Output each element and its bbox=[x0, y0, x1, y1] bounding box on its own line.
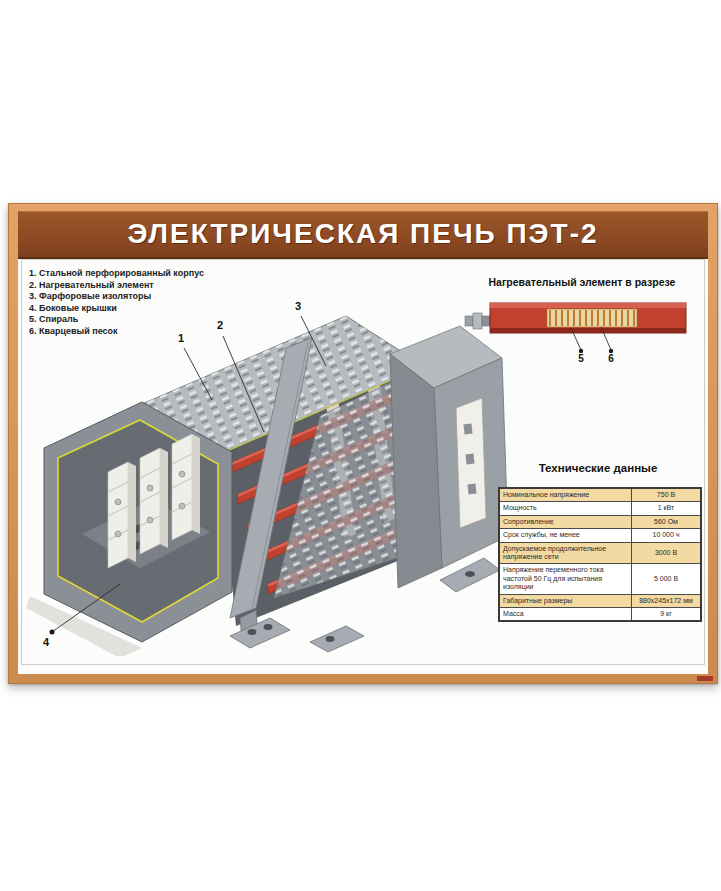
spiral-cutaway-window bbox=[547, 309, 637, 327]
table-row: Срок службы, не менее 10 000 ч bbox=[499, 529, 701, 542]
end-housing bbox=[390, 326, 508, 592]
publisher-mark bbox=[697, 676, 713, 681]
spec-label-cell: Габаритные размеры bbox=[499, 594, 632, 607]
table-row: Сопротивление 560 Ом bbox=[499, 515, 701, 528]
callout-dot bbox=[50, 630, 55, 635]
table-row: Напряжение переменного тока частотой 50 … bbox=[499, 564, 701, 594]
spec-label-cell: Напряжение переменного тока частотой 50 … bbox=[499, 564, 632, 594]
spec-table: Номинальное напряжение 750 В Мощность 1 … bbox=[498, 487, 702, 622]
spec-label-cell: Срок службы, не менее bbox=[499, 529, 632, 542]
spec-label-cell: Сопротивление bbox=[499, 515, 632, 528]
callout-5-spiral: 5 bbox=[578, 353, 584, 364]
callout-4-side-covers: 4 bbox=[43, 636, 50, 648]
side-cover-opening bbox=[44, 402, 232, 642]
page-title: ЭЛЕКТРИЧЕСКАЯ ПЕЧЬ ПЭТ-2 bbox=[18, 212, 708, 256]
spec-value-cell: 560 Ом bbox=[632, 515, 702, 528]
poster-photo-page: ЭЛЕКТРИЧЕСКАЯ ПЕЧЬ ПЭТ-2 1. Стальной пер… bbox=[0, 0, 721, 891]
poster-inner-sheet: ЭЛЕКТРИЧЕСКАЯ ПЕЧЬ ПЭТ-2 1. Стальной пер… bbox=[18, 211, 708, 674]
spec-table-title: Технические данные bbox=[478, 462, 718, 474]
callout-6-quartz-sand: 6 bbox=[608, 353, 614, 364]
callout-3-porcelain-insulators: 3 bbox=[295, 300, 301, 312]
table-row: Габаритные размеры 880х245х172 мм bbox=[499, 594, 701, 607]
spec-value-cell: 1 кВт bbox=[632, 502, 702, 515]
spec-value-cell: 9 кг bbox=[632, 607, 702, 621]
spec-label-cell: Масса bbox=[499, 607, 632, 621]
spec-label-cell: Допускаемое продолжительное напряжение с… bbox=[499, 542, 632, 564]
legend-item: 2. Нагревательный элемент bbox=[29, 280, 204, 292]
legend-item: 1. Стальной перфорированный корпус bbox=[29, 268, 204, 280]
spec-value-cell: 3000 В bbox=[632, 542, 702, 564]
table-row: Мощность 1 кВт bbox=[499, 502, 701, 515]
spec-value-cell: 5 000 В bbox=[632, 564, 702, 594]
callout-1-perforated-body: 1 bbox=[178, 332, 184, 344]
spec-value-cell: 750 В bbox=[632, 488, 702, 502]
spec-value-cell: 880х245х172 мм bbox=[632, 594, 702, 607]
mounting-feet bbox=[230, 610, 364, 652]
callout-2-heating-element: 2 bbox=[217, 319, 223, 331]
spec-label-cell: Номинальное напряжение bbox=[499, 488, 632, 502]
cross-section-heading: Нагревательный элемент в разрезе bbox=[454, 276, 710, 288]
table-row: Номинальное напряжение 750 В bbox=[499, 488, 701, 502]
title-banner: ЭЛЕКТРИЧЕСКАЯ ПЕЧЬ ПЭТ-2 bbox=[18, 211, 708, 259]
table-row: Масса 9 кг bbox=[499, 607, 701, 621]
table-row: Допускаемое продолжительное напряжение с… bbox=[499, 542, 701, 564]
spec-value-cell: 10 000 ч bbox=[632, 529, 702, 542]
furnace-cutaway-illustration: 1 2 3 4 bbox=[24, 296, 524, 656]
poster: ЭЛЕКТРИЧЕСКАЯ ПЕЧЬ ПЭТ-2 1. Стальной пер… bbox=[8, 203, 718, 684]
spec-label-cell: Мощность bbox=[499, 502, 632, 515]
